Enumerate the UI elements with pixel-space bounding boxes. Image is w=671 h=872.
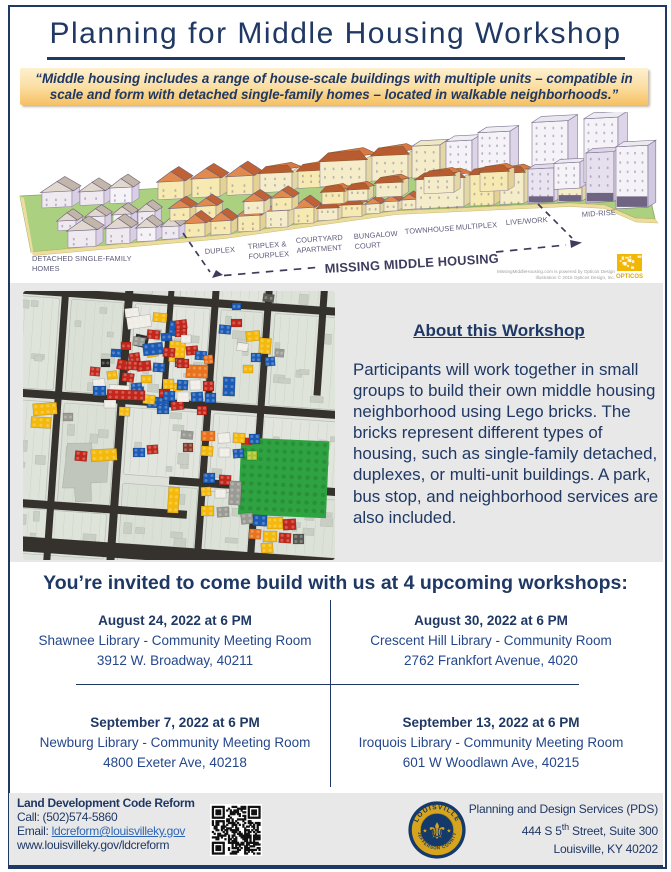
svg-text:MULTIPLEX: MULTIPLEX — [456, 220, 498, 232]
svg-text:TOWNHOUSE: TOWNHOUSE — [405, 224, 455, 236]
svg-text:⚜: ⚜ — [427, 819, 448, 844]
svg-text:Illustration © 2015 Opticos De: Illustration © 2015 Opticos Design, Inc. — [536, 274, 615, 280]
svg-text:BUNGALOW: BUNGALOW — [354, 229, 398, 241]
svg-text:HOMES: HOMES — [32, 264, 60, 273]
svg-text:MID-RISE: MID-RISE — [582, 208, 617, 219]
svg-text:FOURPLEX: FOURPLEX — [248, 249, 289, 261]
svg-text:★: ★ — [447, 828, 452, 835]
svg-text:DUPLEX: DUPLEX — [205, 245, 236, 256]
svg-text:★: ★ — [423, 828, 428, 835]
svg-text:DETACHED SINGLE-FAMILY: DETACHED SINGLE-FAMILY — [32, 254, 132, 263]
svg-text:APARTMENT: APARTMENT — [296, 243, 343, 255]
svg-text:COURT: COURT — [354, 240, 382, 251]
svg-text:MissingMiddleHousing.com is po: MissingMiddleHousing.com is powered by O… — [497, 269, 615, 274]
svg-text:LIVE/WORK: LIVE/WORK — [506, 215, 548, 227]
svg-text:MISSING MIDDLE HOUSING: MISSING MIDDLE HOUSING — [324, 251, 499, 276]
svg-text:OPTICOS: OPTICOS — [616, 274, 643, 280]
